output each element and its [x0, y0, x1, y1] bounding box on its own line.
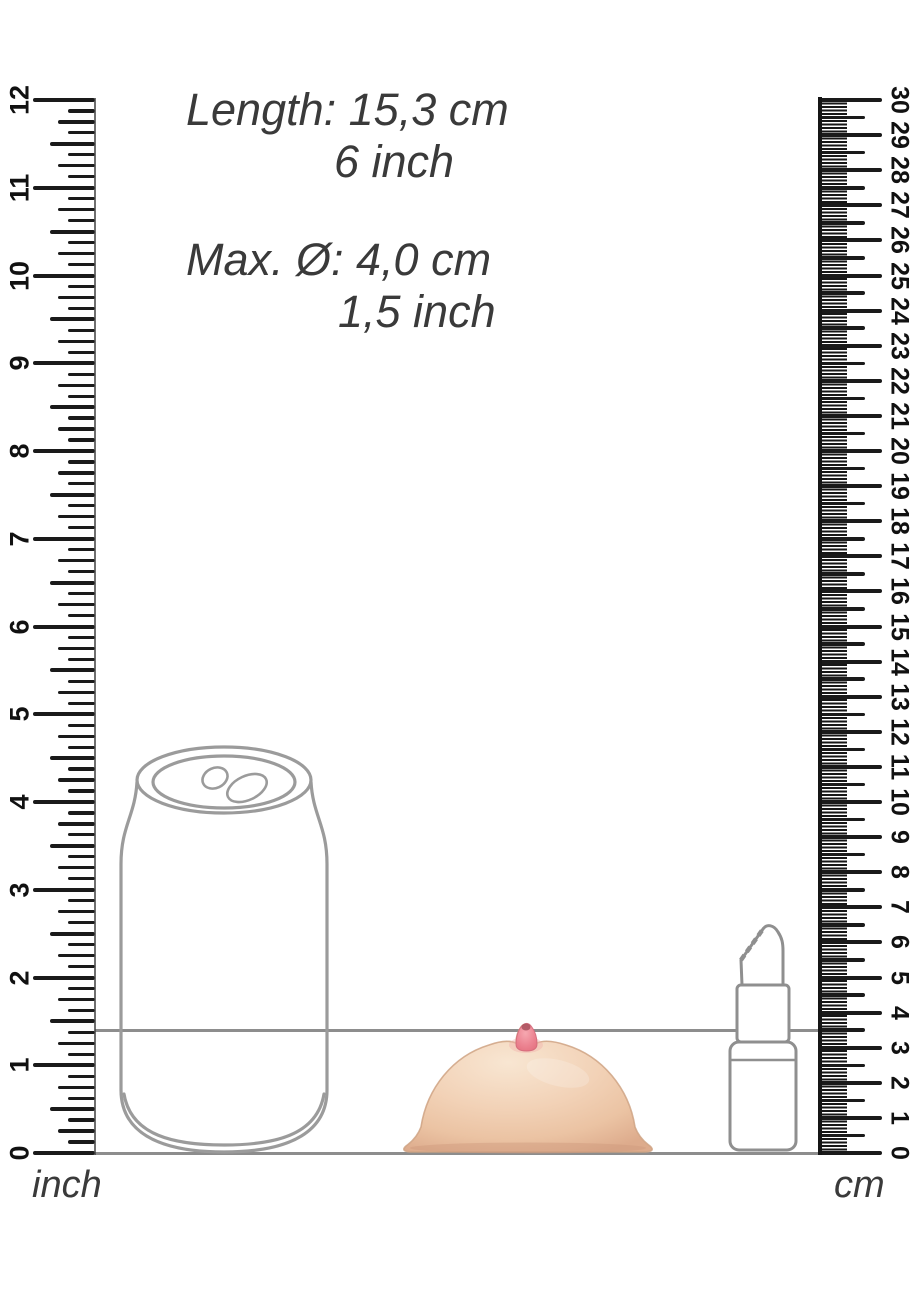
cm-ruler-number: 22 [885, 367, 914, 395]
inch-tick [33, 361, 95, 365]
cm-tick [820, 519, 882, 523]
inch-tick [58, 296, 95, 299]
inch-tick [58, 647, 95, 650]
inch-tick [68, 307, 95, 310]
cm-ruler-number: 0 [885, 1146, 914, 1160]
inch-tick [68, 416, 95, 419]
inch-ruler-number: 1 [5, 1058, 36, 1073]
cm-ruler-number: 12 [885, 718, 914, 746]
inch-tick [58, 1086, 95, 1089]
cm-ruler-number: 14 [885, 648, 914, 676]
inch-tick [58, 252, 95, 255]
inch-tick [68, 153, 95, 156]
half-cm-tick [820, 677, 865, 681]
half-cm-tick [820, 818, 865, 822]
inch-tick [50, 1019, 95, 1023]
lipstick [722, 918, 804, 1158]
cm-tick [820, 449, 882, 453]
nipple-tip [522, 1024, 531, 1031]
inch-tick [68, 373, 95, 376]
inch-tick [68, 131, 95, 134]
breast-base-shadow [410, 1143, 646, 1154]
inch-tick [68, 987, 95, 990]
inch-tick [58, 691, 95, 694]
cm-tick [820, 309, 882, 313]
half-cm-tick [820, 151, 865, 155]
cm-tick [820, 274, 882, 278]
inch-tick [50, 405, 95, 409]
inch-tick [68, 395, 95, 398]
inch-tick [68, 702, 95, 705]
half-cm-tick [820, 362, 865, 366]
inch-tick [50, 844, 95, 848]
cm-tick [820, 1011, 882, 1015]
cm-tick [820, 379, 882, 383]
inch-tick [33, 1151, 95, 1155]
inch-tick [58, 208, 95, 211]
inch-tick [50, 581, 95, 585]
can-bottom-rim [124, 1094, 324, 1145]
inch-tick [68, 877, 95, 880]
cm-ruler-number: 2 [885, 1076, 914, 1090]
inch-tick [68, 482, 95, 485]
cm-tick [820, 133, 882, 137]
cm-tick [820, 554, 882, 558]
cm-tick [820, 344, 882, 348]
half-cm-tick [820, 642, 865, 646]
lipstick-inner-tube [737, 985, 789, 1042]
inch-ruler-number: 6 [5, 619, 36, 634]
inch-unit-label: inch [32, 1164, 102, 1207]
inch-tick [68, 746, 95, 749]
cm-ruler-number: 27 [885, 191, 914, 219]
inch-tick [68, 614, 95, 617]
inch-tick [68, 899, 95, 902]
diameter-value: Max. Ø: 4,0 cm [186, 234, 509, 286]
inch-tick [68, 680, 95, 683]
half-cm-tick [820, 186, 865, 190]
half-cm-tick [820, 221, 865, 225]
inch-tick [68, 351, 95, 354]
cm-tick [820, 484, 882, 488]
inch-tick [33, 625, 95, 629]
cm-tick [820, 870, 882, 874]
inch-tick [33, 888, 95, 892]
half-cm-tick [820, 1134, 865, 1138]
inch-tick [58, 340, 95, 343]
cm-ruler-number: 10 [885, 788, 914, 816]
inch-tick [68, 592, 95, 595]
half-cm-tick [820, 1099, 865, 1103]
cm-ruler-number: 3 [885, 1041, 914, 1055]
inch-tick [50, 756, 95, 760]
inch-ruler-number: 8 [5, 443, 36, 458]
cm-ruler-number: 4 [885, 1006, 914, 1020]
inch-tick [33, 449, 95, 453]
inch-tick [58, 384, 95, 387]
inch-tick [50, 1107, 95, 1111]
half-cm-tick [820, 467, 865, 471]
can-body-outline [121, 782, 327, 1152]
cm-tick [820, 905, 882, 909]
cm-tick [820, 835, 882, 839]
inch-tick [58, 1129, 95, 1132]
cm-ruler-number: 29 [885, 121, 914, 149]
half-cm-tick [820, 888, 865, 892]
cm-tick [820, 168, 882, 172]
inch-tick [58, 910, 95, 913]
half-cm-tick [820, 607, 865, 611]
inch-tick [68, 1031, 95, 1034]
inch-tick [68, 811, 95, 814]
cm-tick [820, 203, 882, 207]
cm-tick [820, 1046, 882, 1050]
inch-tick [33, 274, 95, 278]
inch-tick [68, 789, 95, 792]
inch-tick [68, 943, 95, 946]
inch-tick [68, 724, 95, 727]
breast-shaped-product [396, 1018, 660, 1158]
cm-ruler-number: 26 [885, 226, 914, 254]
half-cm-tick [820, 116, 865, 120]
cm-ruler-number: 25 [885, 262, 914, 290]
cm-ruler-number: 21 [885, 402, 914, 430]
inch-tick [68, 548, 95, 551]
cm-tick [820, 730, 882, 734]
inch-tick [68, 1053, 95, 1056]
cm-ruler-number: 16 [885, 577, 914, 605]
inch-tick [33, 186, 95, 190]
inch-tick [68, 658, 95, 661]
cm-tick [820, 1081, 882, 1085]
cm-tick [820, 1151, 882, 1155]
half-cm-tick [820, 923, 865, 927]
diameter-annotation: Max. Ø: 4,0 cm 1,5 inch [186, 234, 509, 338]
cm-unit-label: cm [834, 1164, 885, 1207]
inch-tick [68, 197, 95, 200]
inch-ruler-number: 5 [5, 707, 36, 722]
cm-ruler-number: 5 [885, 971, 914, 985]
cm-tick [820, 589, 882, 593]
inch-tick [68, 219, 95, 222]
inch-tick [33, 1063, 95, 1067]
cm-tick [820, 660, 882, 664]
inch-tick [50, 317, 95, 321]
inch-tick [58, 778, 95, 781]
half-cm-tick [820, 853, 865, 857]
half-cm-tick [820, 256, 865, 260]
lipstick-bullet [741, 926, 783, 985]
half-cm-tick [820, 397, 865, 401]
cm-tick [820, 1116, 882, 1120]
half-cm-tick [820, 572, 865, 576]
half-cm-tick [820, 326, 865, 330]
cm-tick [820, 695, 882, 699]
cm-tick [820, 238, 882, 242]
cm-tick [820, 414, 882, 418]
inch-tick [58, 998, 95, 1001]
inch-tick [58, 164, 95, 167]
inch-tick [58, 559, 95, 562]
can-pull-tab [199, 763, 271, 807]
length-value: Length: 15,3 cm [186, 84, 509, 136]
cm-tick [820, 765, 882, 769]
cm-ruler-number: 8 [885, 865, 914, 879]
inch-tick [33, 712, 95, 716]
inch-tick [68, 833, 95, 836]
inch-tick [68, 109, 95, 112]
inch-tick [68, 526, 95, 529]
inch-tick [58, 471, 95, 474]
half-cm-tick [820, 502, 865, 506]
inch-ruler-number: 12 [5, 85, 36, 115]
inch-tick [58, 735, 95, 738]
cm-ruler-number: 28 [885, 156, 914, 184]
cm-ruler-number: 17 [885, 542, 914, 570]
inch-tick [58, 1042, 95, 1045]
inch-tick [58, 866, 95, 869]
half-cm-tick [820, 783, 865, 787]
cm-tick [820, 976, 882, 980]
cm-tick [820, 98, 882, 102]
half-cm-tick [820, 713, 865, 717]
inch-tick [68, 570, 95, 573]
inch-tick [68, 1118, 95, 1121]
inch-tick [68, 767, 95, 770]
diameter-value-inch: 1,5 inch [186, 286, 509, 338]
lipstick-base-tube [730, 1042, 796, 1150]
inch-tick [50, 142, 95, 146]
inch-tick [50, 932, 95, 936]
half-cm-tick [820, 537, 865, 541]
length-value-inch: 6 inch [186, 136, 509, 188]
cm-tick [820, 940, 882, 944]
inch-tick [68, 438, 95, 441]
half-cm-tick [820, 1064, 865, 1068]
inch-ruler-number: 3 [5, 882, 36, 897]
inch-tick [33, 98, 95, 102]
inch-tick [68, 636, 95, 639]
cm-ruler-number: 6 [885, 935, 914, 949]
cm-ruler-number: 1 [885, 1111, 914, 1125]
inch-ruler-number: 2 [5, 970, 36, 985]
inch-tick [58, 427, 95, 430]
cm-ruler-edge [818, 97, 822, 1155]
half-cm-tick [820, 748, 865, 752]
cm-ruler-number: 23 [885, 332, 914, 360]
inch-tick [68, 460, 95, 463]
cm-ruler-number: 19 [885, 472, 914, 500]
cm-tick [820, 800, 882, 804]
cm-ruler-number: 15 [885, 613, 914, 641]
inch-tick [68, 329, 95, 332]
inch-tick [68, 504, 95, 507]
inch-ruler-edge [94, 98, 96, 1155]
cm-tick [820, 625, 882, 629]
cm-ruler-number: 11 [885, 754, 914, 780]
inch-tick [68, 855, 95, 858]
half-cm-tick [820, 291, 865, 295]
cm-ruler-number: 7 [885, 900, 914, 914]
inch-tick [58, 954, 95, 957]
inch-tick [50, 493, 95, 497]
inch-tick [68, 175, 95, 178]
inch-tick [58, 822, 95, 825]
inch-tick [68, 1140, 95, 1143]
inch-tick [68, 921, 95, 924]
inch-tick [68, 965, 95, 968]
cm-ruler-number: 13 [885, 683, 914, 711]
inch-tick [68, 263, 95, 266]
half-cm-tick [820, 993, 865, 997]
inch-ruler-number: 10 [5, 260, 36, 290]
cm-ruler-number: 9 [885, 830, 914, 844]
cm-ruler-number: 24 [885, 297, 914, 325]
inch-ruler-number: 9 [5, 356, 36, 371]
inch-tick [33, 537, 95, 541]
cm-ruler-number: 20 [885, 437, 914, 465]
inch-tick [33, 976, 95, 980]
inch-tick [50, 230, 95, 234]
inch-tick [58, 515, 95, 518]
inch-tick [68, 1009, 95, 1012]
soda-can [113, 738, 335, 1158]
inch-ruler-number: 0 [5, 1145, 36, 1160]
inch-tick [50, 668, 95, 672]
inch-tick [68, 1075, 95, 1078]
measurement-annotations: Length: 15,3 cm 6 inch Max. Ø: 4,0 cm 1,… [186, 84, 509, 338]
inch-tick [58, 603, 95, 606]
half-cm-tick [820, 1028, 865, 1032]
length-annotation: Length: 15,3 cm 6 inch [186, 84, 509, 188]
inch-tick [68, 241, 95, 244]
product-size-diagram: Length: 15,3 cm 6 inch Max. Ø: 4,0 cm 1,… [0, 0, 916, 1300]
cm-ruler-number: 30 [885, 86, 914, 114]
inch-tick [68, 1097, 95, 1100]
half-cm-tick [820, 432, 865, 436]
inch-ruler-number: 7 [5, 531, 36, 546]
inch-ruler-number: 4 [5, 794, 36, 809]
half-cm-tick [820, 958, 865, 962]
inch-tick [58, 120, 95, 123]
inch-tick [33, 800, 95, 804]
inch-ruler-number: 11 [5, 173, 36, 202]
cm-ruler-number: 18 [885, 507, 914, 535]
inch-tick [68, 285, 95, 288]
